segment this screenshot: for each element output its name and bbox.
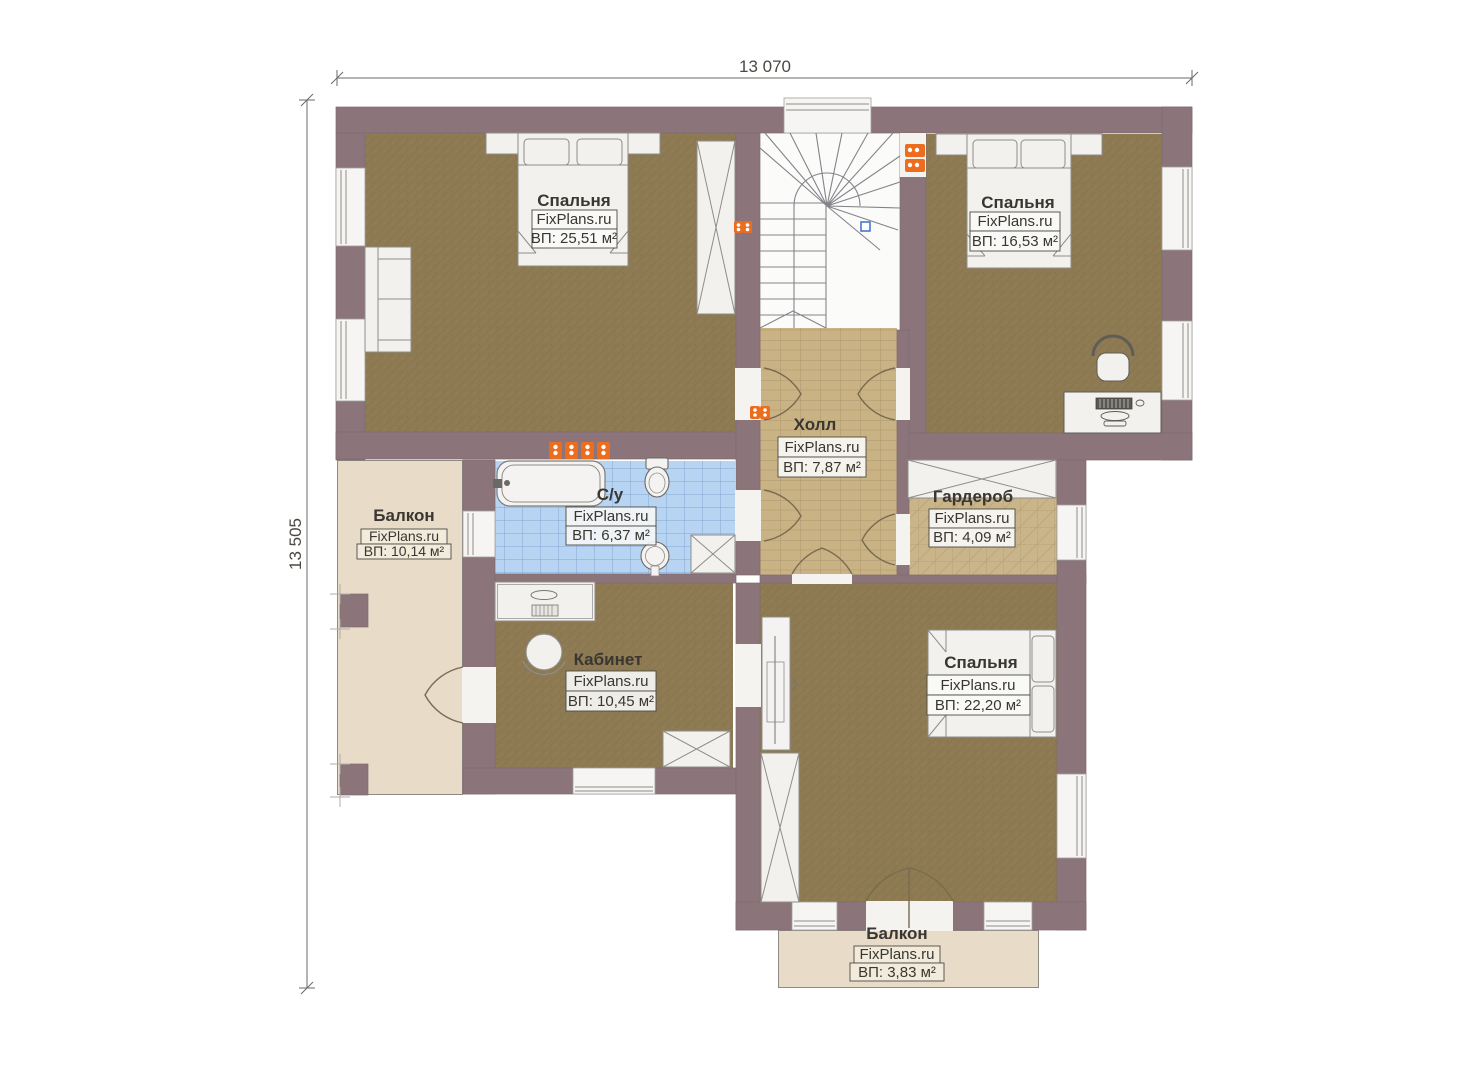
svg-text:FixPlans.ru: FixPlans.ru [977,213,1052,230]
svg-text:FixPlans.ru: FixPlans.ru [934,510,1009,527]
svg-text:FixPlans.ru: FixPlans.ru [859,946,934,963]
svg-text:FixPlans.ru: FixPlans.ru [784,439,859,456]
svg-text:Холл: Холл [794,415,837,434]
svg-text:Гардероб: Гардероб [933,487,1013,506]
svg-text:ВП: 4,09 м²: ВП: 4,09 м² [933,529,1011,546]
svg-text:13 070: 13 070 [739,57,791,76]
svg-text:FixPlans.ru: FixPlans.ru [573,508,648,525]
svg-text:Спальня: Спальня [537,191,610,210]
svg-text:13 505: 13 505 [286,518,305,570]
svg-text:FixPlans.ru: FixPlans.ru [369,528,439,544]
svg-text:Балкон: Балкон [373,506,434,525]
svg-text:Балкон: Балкон [866,924,927,943]
svg-text:ВП: 6,37 м²: ВП: 6,37 м² [572,527,650,544]
svg-text:Спальня: Спальня [981,193,1054,212]
svg-text:FixPlans.ru: FixPlans.ru [573,673,648,690]
svg-text:FixPlans.ru: FixPlans.ru [536,211,611,228]
svg-text:ВП: 22,20 м²: ВП: 22,20 м² [935,697,1021,714]
svg-text:ВП: 3,83 м²: ВП: 3,83 м² [858,964,936,981]
svg-text:FixPlans.ru: FixPlans.ru [940,677,1015,694]
svg-text:Спальня: Спальня [944,653,1017,672]
svg-text:ВП: 10,45 м²: ВП: 10,45 м² [568,693,654,710]
svg-text:С/у: С/у [597,485,624,504]
svg-text:ВП: 10,14 м²: ВП: 10,14 м² [364,543,445,559]
svg-text:ВП: 7,87 м²: ВП: 7,87 м² [783,459,861,476]
svg-text:ВП: 25,51 м²: ВП: 25,51 м² [531,230,617,247]
svg-text:ВП: 16,53 м²: ВП: 16,53 м² [972,233,1058,250]
svg-text:Кабинет: Кабинет [574,650,643,669]
